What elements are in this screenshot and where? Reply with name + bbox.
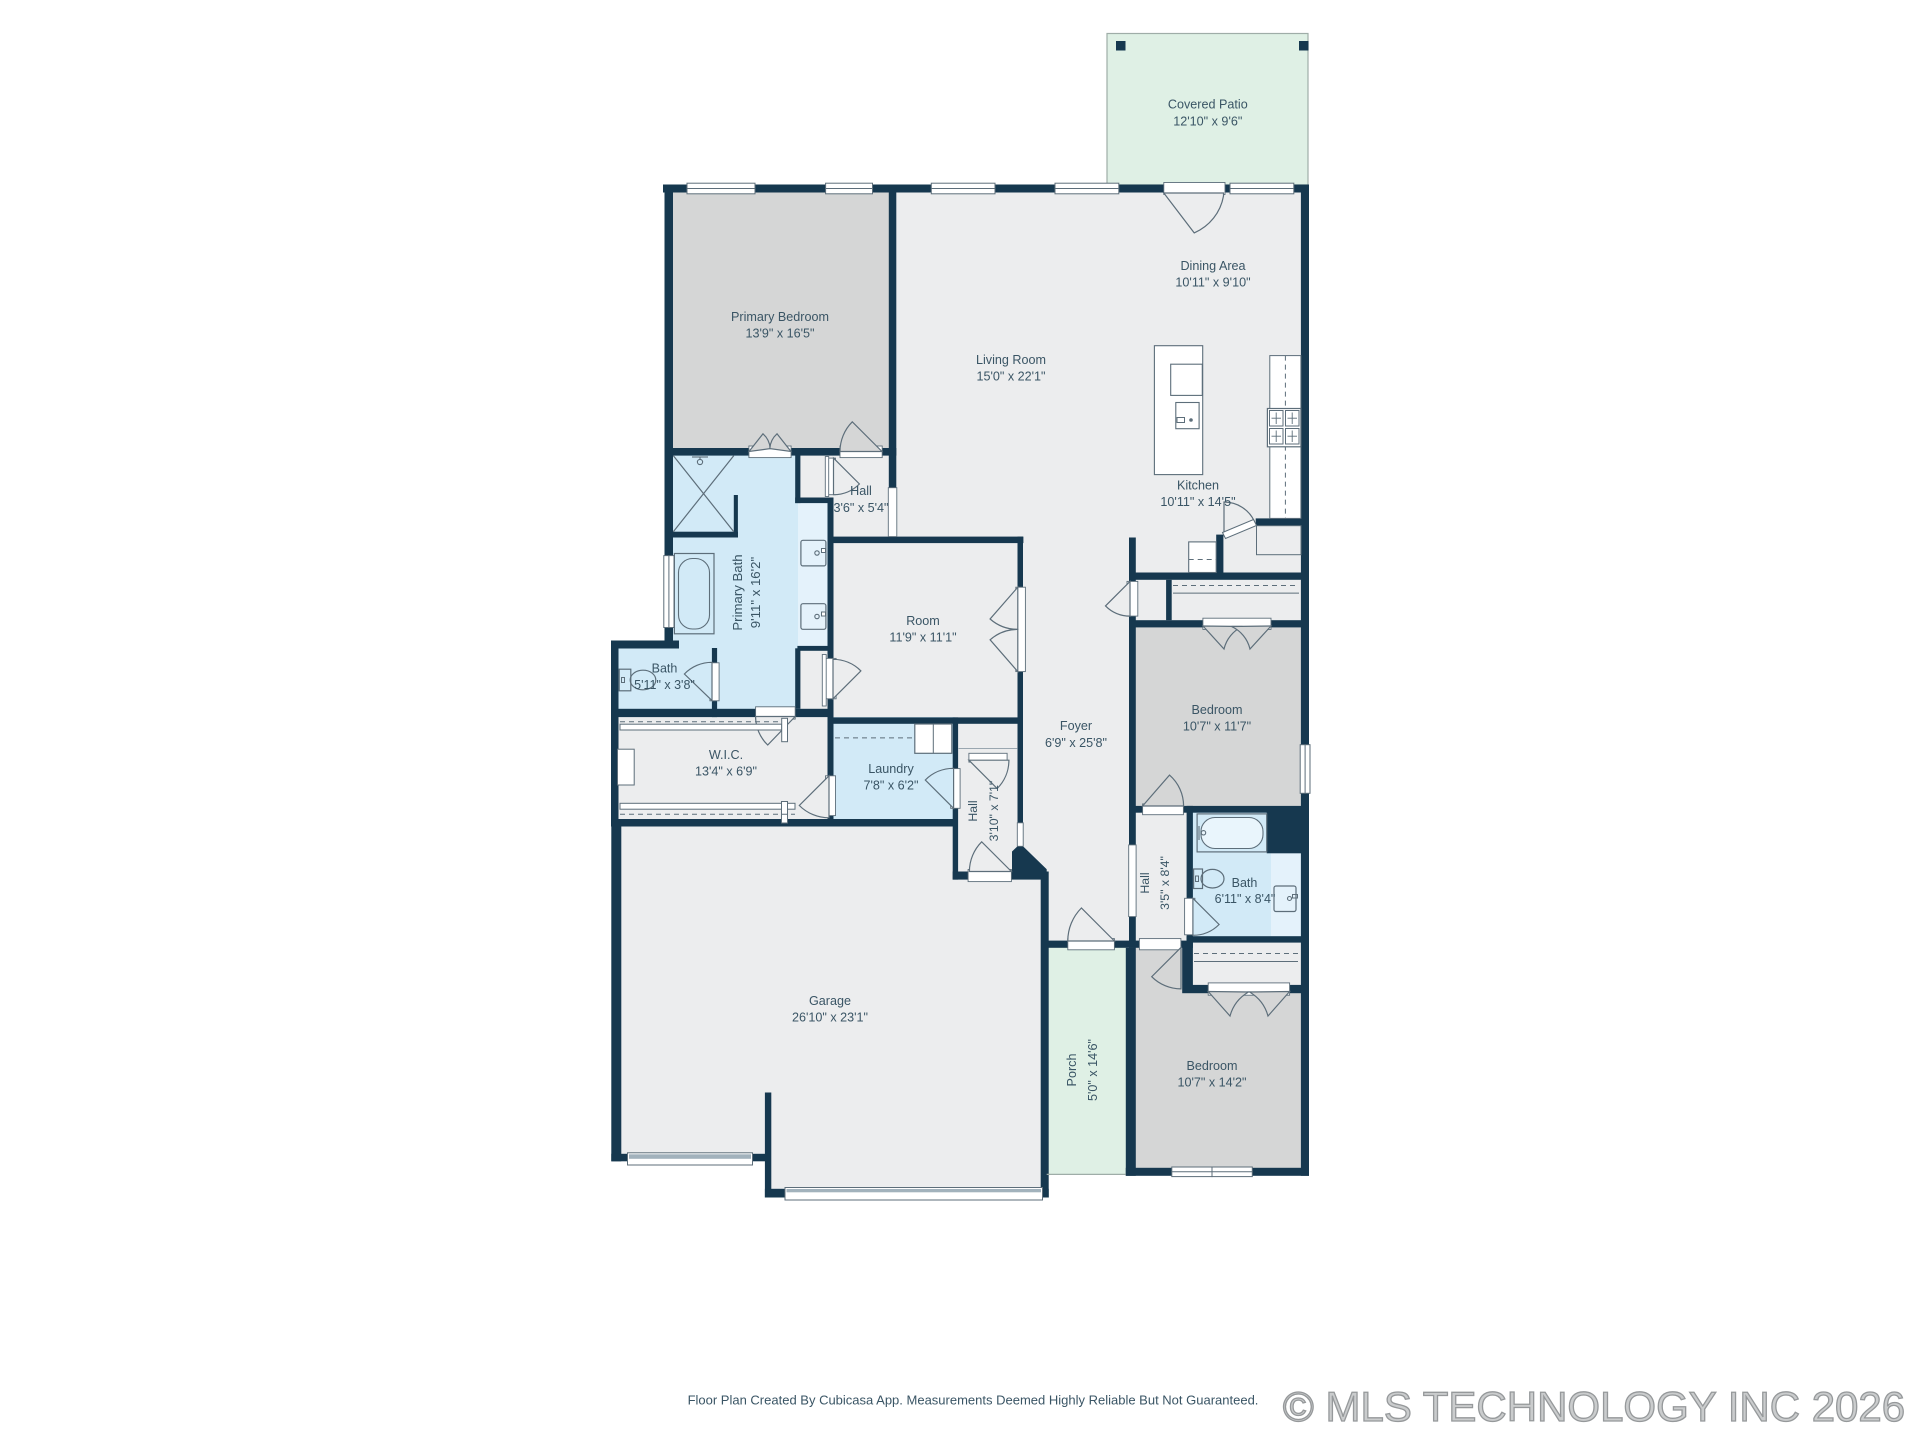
- svg-text:5'11" x 3'8": 5'11" x 3'8": [634, 678, 695, 692]
- svg-text:Hall: Hall: [1138, 872, 1152, 893]
- svg-text:Primary Bath: Primary Bath: [730, 554, 745, 630]
- svg-text:Porch: Porch: [1065, 1054, 1079, 1087]
- svg-text:3'10" x 7'1": 3'10" x 7'1": [987, 781, 1001, 842]
- svg-text:Covered Patio: Covered Patio: [1168, 98, 1248, 112]
- svg-text:Garage: Garage: [809, 994, 851, 1008]
- svg-text:Kitchen: Kitchen: [1177, 479, 1219, 493]
- svg-text:Room: Room: [906, 614, 940, 628]
- svg-text:Primary Bedroom: Primary Bedroom: [731, 310, 829, 324]
- svg-text:Laundry: Laundry: [868, 762, 914, 776]
- svg-text:6'11" x 8'4": 6'11" x 8'4": [1215, 892, 1276, 906]
- svg-text:Bedroom: Bedroom: [1186, 1059, 1237, 1073]
- svg-text:6'9" x 25'8": 6'9" x 25'8": [1045, 736, 1107, 750]
- svg-text:15'0" x 22'1": 15'0" x 22'1": [976, 370, 1045, 384]
- svg-text:7'8" x 6'2": 7'8" x 6'2": [863, 779, 918, 793]
- svg-text:Foyer: Foyer: [1060, 719, 1092, 733]
- svg-text:3'6" x 5'4": 3'6" x 5'4": [833, 501, 888, 515]
- svg-text:10'11" x 9'10": 10'11" x 9'10": [1175, 276, 1250, 290]
- svg-text:Hall: Hall: [966, 800, 980, 821]
- svg-text:5'0" x 14'6": 5'0" x 14'6": [1086, 1039, 1100, 1101]
- svg-text:Dining Area: Dining Area: [1180, 259, 1245, 273]
- svg-text:W.I.C.: W.I.C.: [709, 748, 743, 762]
- svg-text:9'11" x 16'2": 9'11" x 16'2": [748, 557, 763, 629]
- svg-text:Bath: Bath: [1232, 876, 1258, 890]
- svg-text:© MLS TECHNOLOGY INC 2026: © MLS TECHNOLOGY INC 2026: [1283, 1383, 1905, 1430]
- svg-text:10'7" x 14'2": 10'7" x 14'2": [1177, 1076, 1246, 1090]
- svg-text:12'10" x 9'6": 12'10" x 9'6": [1173, 115, 1242, 129]
- svg-text:13'4" x 6'9": 13'4" x 6'9": [695, 765, 757, 779]
- svg-text:Floor Plan Created By Cubicasa: Floor Plan Created By Cubicasa App. Meas…: [688, 1393, 1259, 1408]
- svg-text:10'11" x 14'5": 10'11" x 14'5": [1160, 495, 1235, 509]
- svg-text:10'7" x 11'7": 10'7" x 11'7": [1183, 720, 1251, 734]
- svg-text:Living Room: Living Room: [976, 353, 1046, 367]
- svg-text:11'9" x 11'1": 11'9" x 11'1": [889, 631, 956, 645]
- svg-text:Hall: Hall: [850, 484, 872, 498]
- svg-text:Bath: Bath: [652, 662, 678, 676]
- svg-text:Bedroom: Bedroom: [1191, 703, 1242, 717]
- svg-text:3'5" x 8'4": 3'5" x 8'4": [1158, 856, 1172, 910]
- svg-text:13'9" x 16'5": 13'9" x 16'5": [745, 327, 814, 341]
- svg-text:26'10" x 23'1": 26'10" x 23'1": [792, 1011, 868, 1025]
